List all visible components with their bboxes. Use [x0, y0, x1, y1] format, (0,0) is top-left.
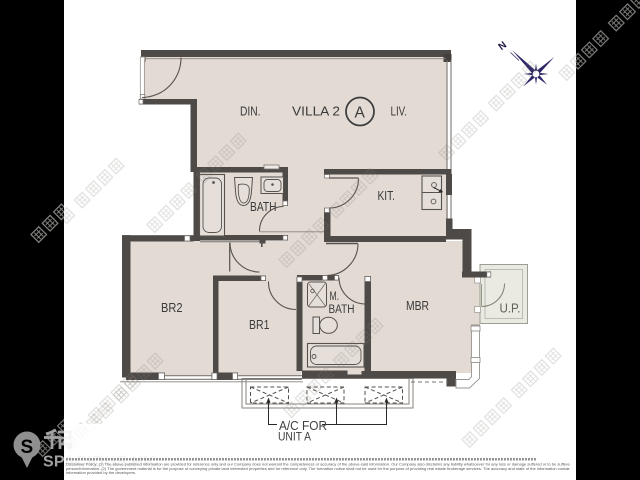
svg-text:VILLA 2: VILLA 2	[292, 104, 340, 119]
svg-text:M.: M.	[330, 291, 340, 303]
svg-text:person/information. (2) The go: person/information. (2) The government m…	[66, 466, 575, 471]
svg-text:A: A	[355, 105, 366, 122]
svg-text:DIN.: DIN.	[240, 104, 261, 119]
svg-text:U.P.: U.P.	[500, 302, 521, 316]
svg-text:KIT.: KIT.	[378, 189, 396, 203]
svg-text:information provided by the de: information provided by the developers.	[66, 470, 136, 475]
svg-text:BR2: BR2	[161, 301, 183, 315]
svg-text:MBR: MBR	[406, 299, 429, 313]
svg-text:BATH: BATH	[329, 304, 355, 316]
svg-text:BR1: BR1	[249, 318, 270, 332]
svg-text:LIV.: LIV.	[391, 104, 408, 119]
svg-text:UNIT A: UNIT A	[278, 430, 311, 444]
svg-text:S: S	[21, 437, 34, 458]
svg-text:BATH: BATH	[250, 200, 277, 214]
